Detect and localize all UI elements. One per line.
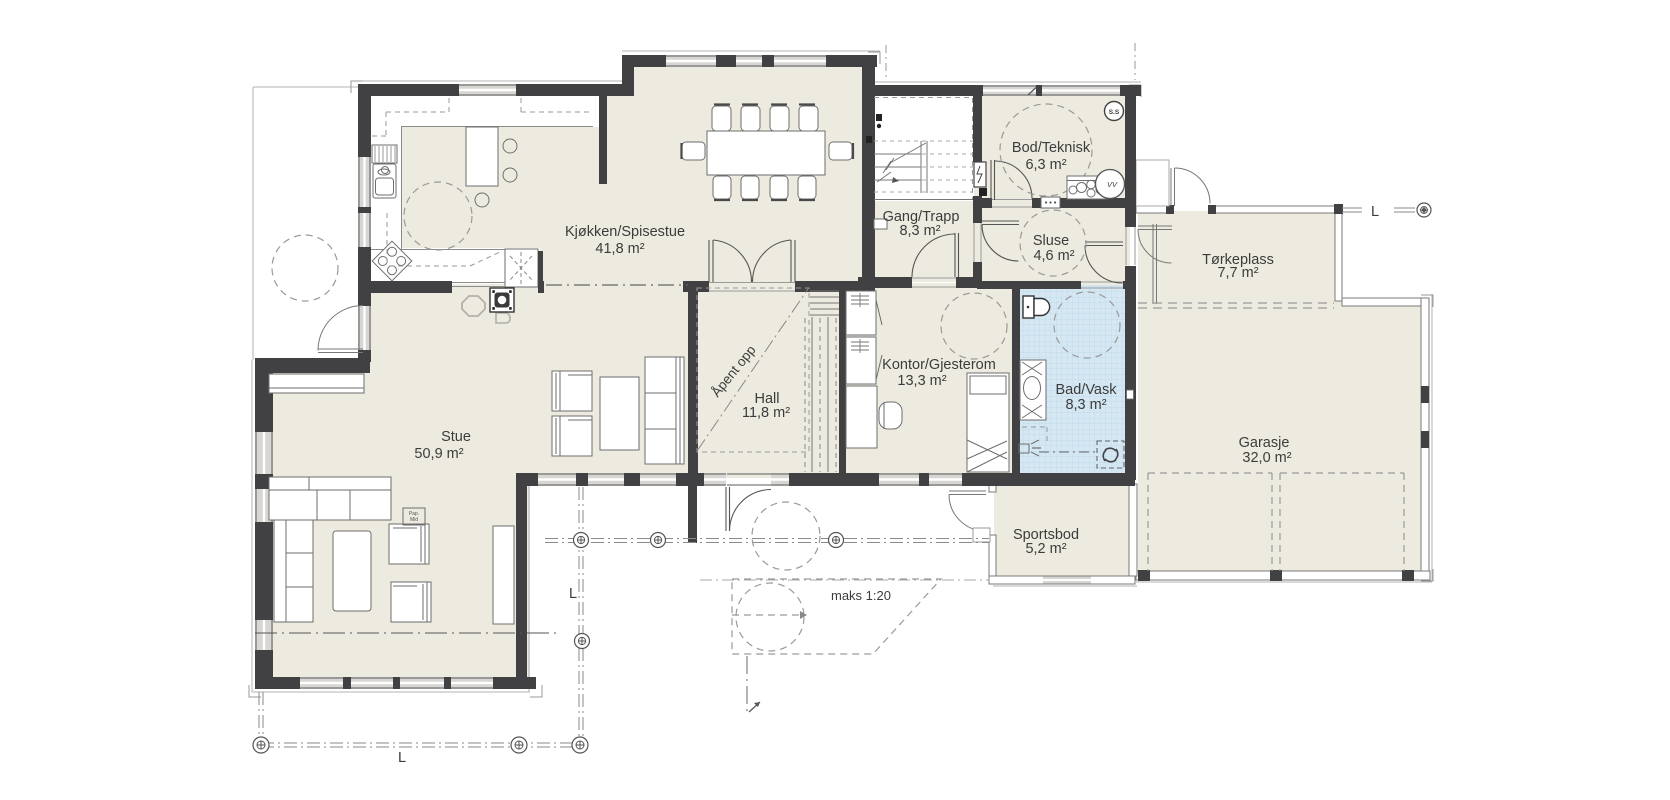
svg-text:L: L	[1371, 204, 1379, 220]
svg-text:L: L	[569, 586, 577, 602]
svg-text:Kjøkken/Spisestue: Kjøkken/Spisestue	[565, 224, 685, 240]
svg-text:50,9 m²: 50,9 m²	[414, 446, 463, 462]
svg-text:5,2 m²: 5,2 m²	[1025, 541, 1066, 557]
svg-text:Sluse: Sluse	[1033, 233, 1069, 249]
svg-text:6,3 m²: 6,3 m²	[1025, 157, 1066, 173]
svg-text:Mid: Mid	[410, 517, 418, 523]
svg-text:32,0 m²: 32,0 m²	[1242, 450, 1291, 466]
svg-text:Garasje: Garasje	[1239, 435, 1290, 451]
svg-text:VV: VV	[1107, 180, 1118, 189]
svg-text:Bad/Vask: Bad/Vask	[1056, 382, 1118, 398]
svg-text:8,3 m²: 8,3 m²	[899, 223, 940, 239]
svg-text:Bod/Teknisk: Bod/Teknisk	[1012, 140, 1091, 156]
svg-text:maks 1:20: maks 1:20	[831, 588, 891, 603]
svg-text:Stue: Stue	[441, 429, 471, 445]
svg-text:4,6 m²: 4,6 m²	[1033, 248, 1074, 264]
svg-text:Kontor/Gjesterom: Kontor/Gjesterom	[882, 357, 996, 373]
svg-text:L: L	[398, 750, 406, 766]
svg-text:11,8 m²: 11,8 m²	[742, 405, 790, 421]
svg-text:S.S: S.S	[1109, 109, 1120, 116]
svg-text:8,3 m²: 8,3 m²	[1065, 397, 1106, 413]
svg-text:7,7 m²: 7,7 m²	[1217, 265, 1258, 281]
svg-text:13,3 m²: 13,3 m²	[897, 373, 946, 389]
svg-text:41,8 m²: 41,8 m²	[595, 241, 644, 257]
